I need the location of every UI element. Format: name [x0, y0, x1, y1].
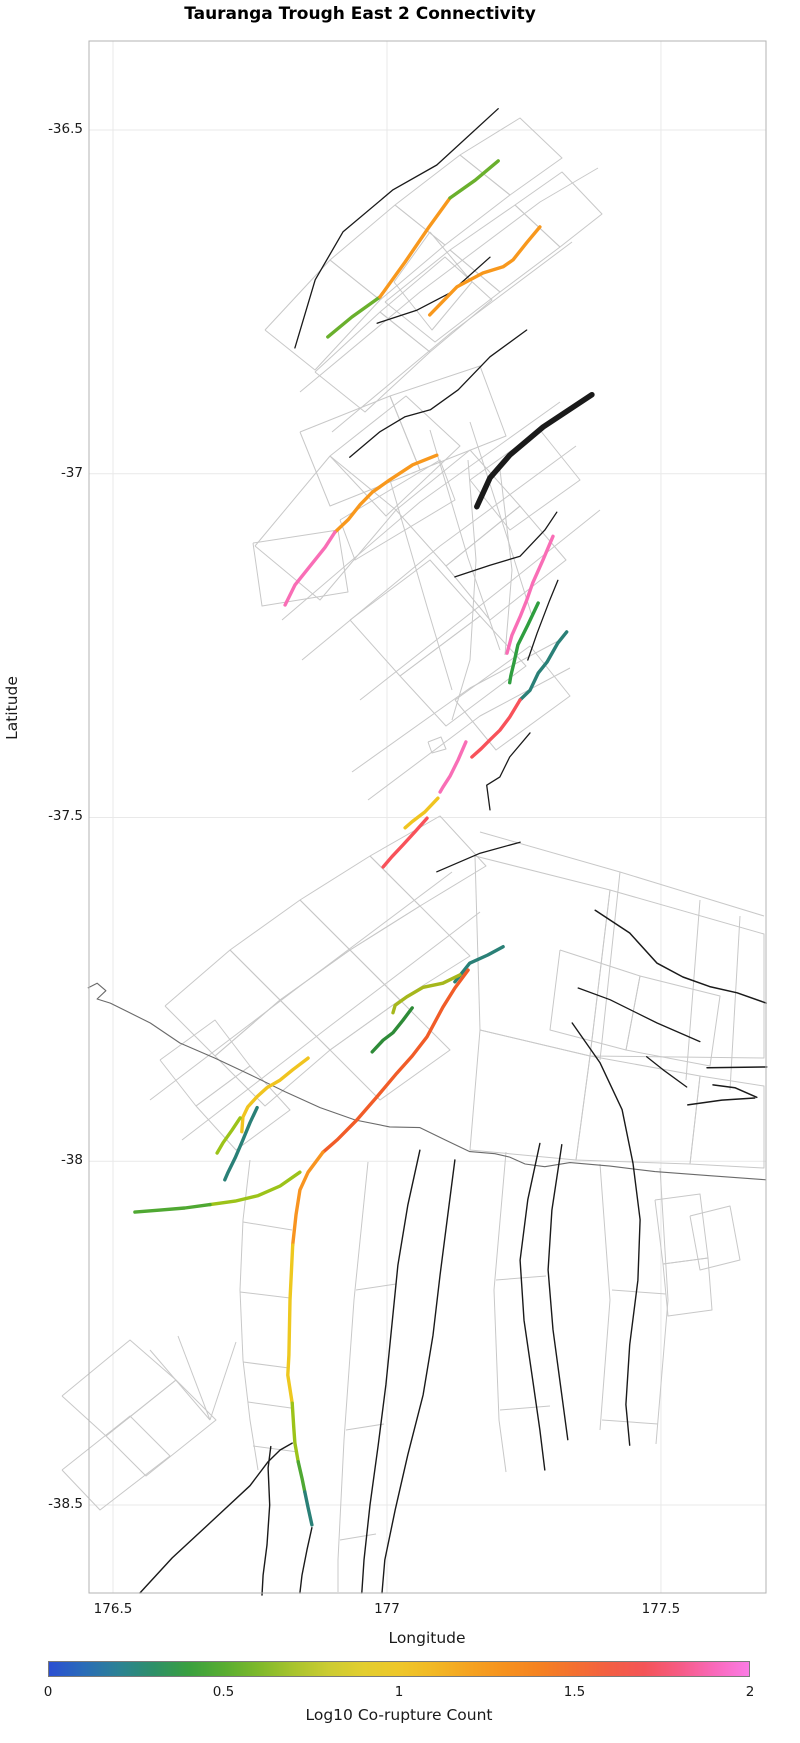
fault-subsection-outline — [332, 242, 572, 432]
x-tick-label: 176.5 — [78, 1601, 148, 1617]
fault-subsection-outline — [346, 1424, 384, 1430]
fault-trace — [572, 1023, 640, 1445]
fault-trace — [595, 910, 766, 1003]
fault-subsection-outline — [626, 976, 720, 1066]
y-tick-label: -37 — [0, 465, 83, 481]
x-axis-label: Longitude — [327, 1629, 527, 1647]
fault-subsection-outline — [395, 155, 510, 245]
fault-subsection-outline — [600, 872, 620, 1060]
colorbar-tick-label: 1 — [377, 1684, 421, 1700]
fault-subsection-outline — [663, 1258, 712, 1316]
fault-subsection-outline — [368, 668, 570, 800]
y-tick-label: -38 — [0, 1152, 83, 1168]
fault-segment-long-line-yellow — [288, 1245, 293, 1403]
fault-subsection-outline — [390, 480, 452, 690]
fault-subsection-outline — [602, 1420, 658, 1424]
colorbar-tick-label: 0.5 — [202, 1684, 246, 1700]
figure: Tauranga Trough East 2 Connectivity Lati… — [0, 0, 800, 1743]
fault-segment-mid-crimson-short — [383, 818, 427, 867]
y-tick-label: -36.5 — [0, 121, 83, 137]
fault-subsection-outline — [600, 1164, 610, 1430]
y-tick-label: -38.5 — [0, 1496, 83, 1512]
fault-subsection-outline — [62, 1340, 176, 1436]
fault-trace — [382, 1160, 455, 1593]
fault-trace — [520, 1143, 545, 1470]
fault-trace — [362, 1150, 420, 1593]
fault-subsection-outline — [265, 260, 380, 370]
fault-segment-mid-teal — [520, 632, 567, 700]
fault-subsection-outline — [550, 950, 640, 1050]
fault-subsection-outline — [515, 172, 602, 247]
fault-subsection-outline — [178, 1336, 210, 1420]
fault-segment-mid-pink-west — [285, 532, 335, 605]
colorbar-label: Log10 Co-rupture Count — [249, 1706, 549, 1724]
fault-subsection-outline — [390, 366, 506, 470]
fault-subsection-outline — [656, 1168, 668, 1444]
fault-segment-southwest-green-tip — [135, 1205, 210, 1213]
fault-trace — [477, 395, 592, 507]
fault-segment-mid-pink-diagonal — [507, 536, 553, 653]
fault-subsection-outline — [150, 872, 452, 1100]
fault-subsection-outline — [182, 912, 480, 1140]
fault-subsection-outline — [655, 1194, 708, 1264]
fault-subsection-outline — [240, 1292, 290, 1298]
fault-subsection-outline — [315, 312, 430, 412]
fault-subsection-outline — [280, 950, 400, 1050]
fault-subsection-outline — [475, 856, 610, 1056]
fault-subsection-outline — [500, 1406, 550, 1410]
fault-segment-southwest-chartreuse-long — [210, 1172, 300, 1204]
fault-segment-long-line-teal-tip — [305, 1492, 312, 1525]
fault-subsection-outline — [165, 950, 280, 1056]
fault-trace — [647, 1057, 687, 1087]
plot-area — [0, 0, 800, 1743]
fault-segment-mid-crimson — [472, 700, 520, 757]
fault-segment-west-chartreuse-short — [217, 1118, 240, 1153]
fault-subsection-outline — [470, 1030, 590, 1160]
fault-subsection-outline — [730, 916, 740, 1090]
colorbar-tick-label: 2 — [728, 1684, 772, 1700]
fault-trace — [300, 1528, 312, 1593]
fault-trace — [578, 988, 700, 1042]
fault-subsection-outline — [338, 1162, 368, 1592]
fault-subsection-outline — [253, 1446, 298, 1452]
fault-subsection-outline — [470, 422, 532, 616]
fault-subsection-outline — [150, 1350, 210, 1420]
fault-segment-long-line-orange — [293, 1152, 323, 1245]
fault-subsection-outline — [243, 1222, 292, 1230]
coastline — [88, 983, 766, 1180]
fault-subsection-outline — [452, 460, 476, 720]
fault-segment-long-line-vermillion — [323, 970, 468, 1152]
colorbar-tick-label: 1.5 — [553, 1684, 597, 1700]
fault-subsection-outline — [494, 1152, 506, 1472]
fault-subsection-outline — [243, 1362, 289, 1368]
fault-subsection-outline — [612, 1290, 666, 1294]
fault-subsection-outline — [106, 1380, 216, 1476]
fault-subsection-outline — [302, 446, 576, 660]
fault-subsection-outline — [300, 396, 420, 506]
fault-subsection-outline — [356, 1284, 396, 1290]
colorbar — [48, 1661, 750, 1677]
fault-trace — [548, 1145, 568, 1440]
y-tick-label: -37.5 — [0, 808, 83, 824]
fault-trace — [713, 1085, 757, 1097]
fault-subsection-outline — [690, 1076, 764, 1168]
fault-segment-north-diagonal-lower-green — [328, 297, 380, 337]
fault-subsection-outline — [240, 1160, 258, 1470]
fault-subsection-outline — [330, 1000, 450, 1100]
fault-segment-long-line-chartreuse — [292, 1403, 298, 1462]
x-tick-label: 177 — [352, 1601, 422, 1617]
fault-subsection-outline — [428, 737, 446, 753]
fault-subsection-outline — [394, 232, 472, 330]
fault-subsection-outline — [255, 456, 396, 600]
fault-subsection-outline — [690, 1206, 740, 1270]
fault-subsection-outline — [210, 1342, 236, 1420]
colorbar-tick-label: 0 — [26, 1684, 70, 1700]
fault-segment-south-darkgreen-short — [372, 1008, 412, 1052]
fault-subsection-outline — [248, 1402, 291, 1408]
fault-trace — [487, 733, 530, 810]
fault-subsection-outline — [230, 900, 350, 1000]
fault-trace — [707, 1067, 767, 1068]
fault-subsection-outline — [300, 856, 420, 950]
fault-subsection-outline — [480, 832, 764, 916]
fault-subsection-outline — [160, 1020, 250, 1106]
fault-subsection-outline — [350, 560, 480, 676]
fault-subsection-outline — [576, 1056, 700, 1164]
x-tick-label: 177.5 — [626, 1601, 696, 1617]
fault-subsection-outline — [340, 1534, 376, 1540]
fault-segment-north-east-orange — [430, 227, 540, 315]
fault-subsection-outline — [253, 530, 348, 606]
fault-subsection-outline — [350, 906, 470, 1000]
fault-segment-long-line-green — [298, 1462, 305, 1492]
